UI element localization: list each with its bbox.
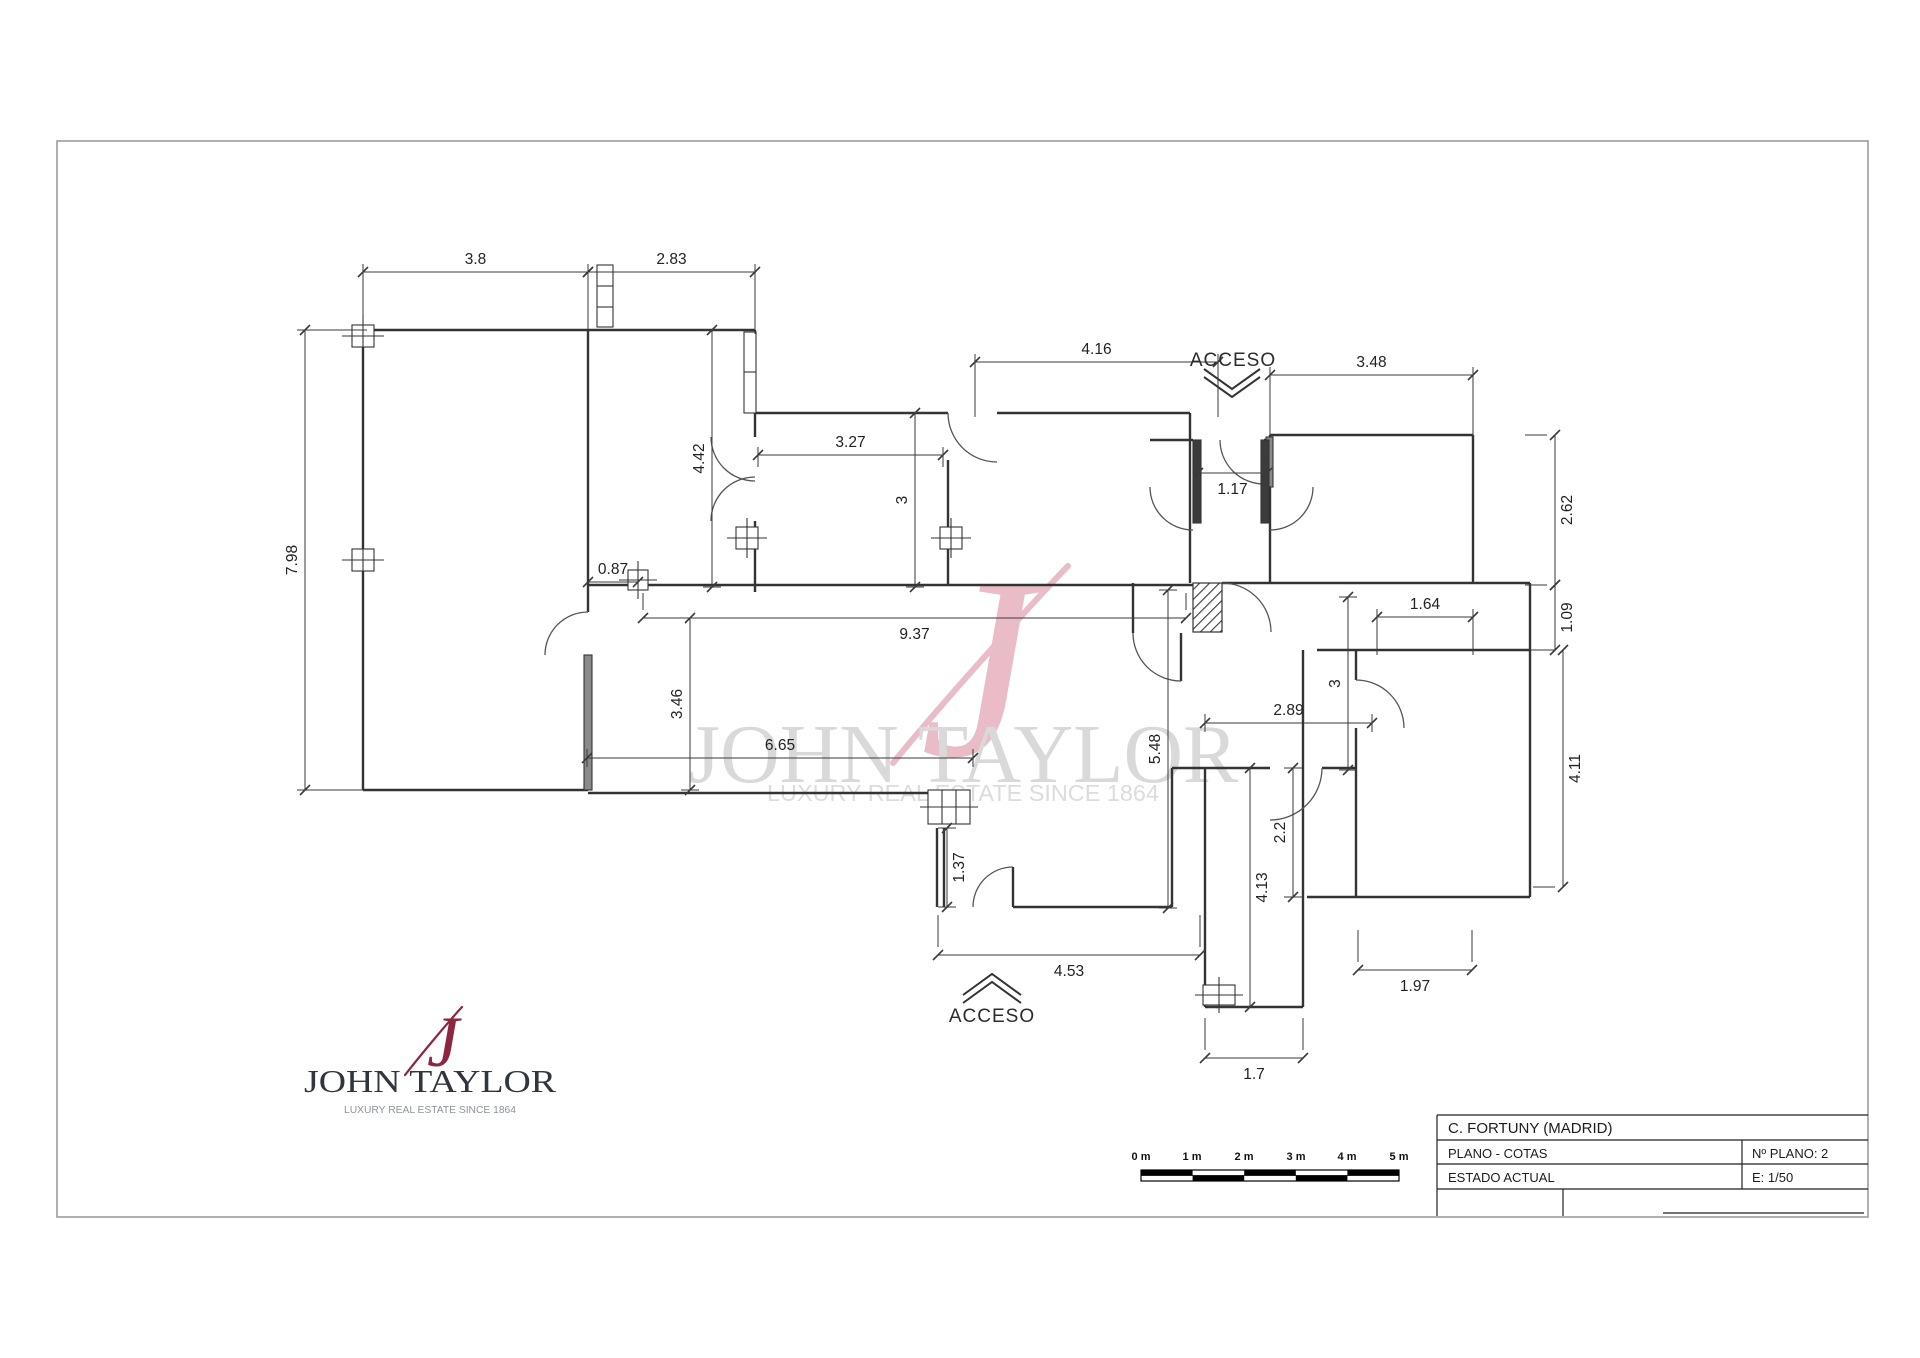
- entry-jamb-right: [1261, 440, 1269, 523]
- dimension-label: 1.64: [1410, 596, 1441, 613]
- titleblock-plan-type: PLANO - COTAS: [1448, 1146, 1548, 1161]
- scale-tick-label: 4 m: [1338, 1151, 1357, 1163]
- dimension-label: 1.7: [1243, 1066, 1265, 1083]
- dimension-label: 3.27: [835, 434, 865, 451]
- dimension-label: 9.37: [899, 626, 929, 643]
- dimension-label: 4.16: [1081, 341, 1111, 358]
- dimension-label: 5.48: [1147, 734, 1164, 764]
- window-top-left: [597, 265, 613, 327]
- logo-tagline: LUXURY REAL ESTATE SINCE 1864: [344, 1104, 516, 1116]
- dimension-label: 3.46: [669, 689, 686, 719]
- scale-tick-label: 0 m: [1132, 1151, 1151, 1163]
- floor-plan-drawing: J JOHN TAYLOR LUXURY REAL ESTATE SINCE 1…: [0, 0, 1920, 1358]
- logo-name: JOHN TAYLOR: [304, 1063, 557, 1099]
- glazed-partition: [584, 655, 592, 790]
- floor-plan-page: J JOHN TAYLOR LUXURY REAL ESTATE SINCE 1…: [0, 0, 1920, 1358]
- dimension-label: 4.53: [1054, 963, 1084, 980]
- scale-tick-label: 5 m: [1390, 1151, 1409, 1163]
- scale-tick-label: 2 m: [1235, 1151, 1254, 1163]
- titleblock-project: C. FORTUNY (MADRID): [1448, 1120, 1612, 1137]
- dimension-label: 1.37: [951, 852, 968, 882]
- scale-tick-label: 3 m: [1287, 1151, 1306, 1163]
- acceso-top-label: ACCESO: [1190, 350, 1276, 371]
- scale-tick-label: 1 m: [1183, 1151, 1202, 1163]
- entry-jamb-left: [1193, 440, 1201, 523]
- entry-threshold-hatch: [1193, 583, 1222, 632]
- dimension-label: 4.13: [1254, 872, 1271, 902]
- dimension-label: 3: [1327, 679, 1344, 688]
- titleblock-plan-number: Nº PLANO: 2: [1752, 1146, 1828, 1161]
- dimension-label: 3: [894, 496, 911, 505]
- dimension-label: 2.62: [1559, 495, 1576, 525]
- dimension-label: 2.89: [1273, 702, 1303, 719]
- dimension-label: 2.83: [656, 251, 686, 268]
- dimension-label: 3.8: [465, 251, 487, 268]
- scale-bar-graphic: [1141, 1170, 1399, 1181]
- window-box: [920, 790, 978, 824]
- dimension-label: 0.87: [598, 561, 628, 578]
- dimension-label: 4.11: [1567, 754, 1584, 783]
- acceso-bottom-label: ACCESO: [949, 1006, 1035, 1027]
- dimension-label: 6.65: [765, 737, 795, 754]
- dimension-label: 7.98: [284, 545, 301, 575]
- dimension-label: 1.97: [1400, 978, 1430, 995]
- dimension-label: 3.48: [1356, 354, 1386, 371]
- titleblock-estado: ESTADO ACTUAL: [1448, 1170, 1555, 1185]
- dimension-label: 2.2: [1272, 822, 1289, 844]
- dimension-label: 1.17: [1217, 481, 1247, 498]
- dimension-label: 4.42: [691, 443, 708, 473]
- titleblock-scale: E: 1/50: [1752, 1170, 1793, 1185]
- dimension-label: 1.09: [1559, 602, 1576, 632]
